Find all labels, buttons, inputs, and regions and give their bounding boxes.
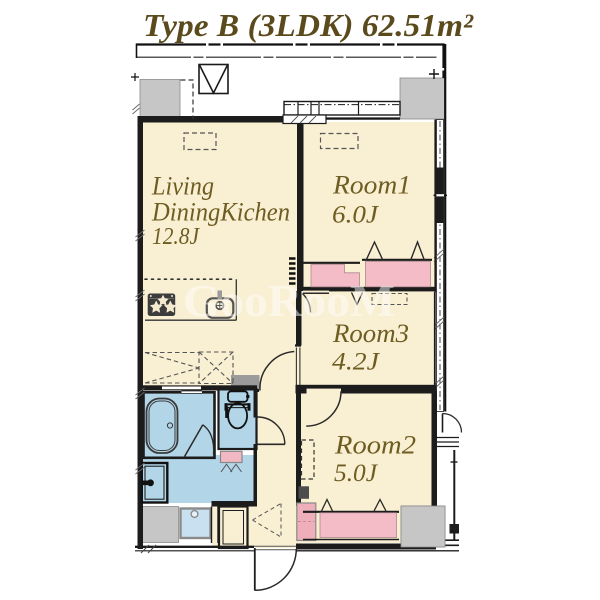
svg-text:Room2: Room2 [334, 431, 416, 460]
svg-text:Living: Living [151, 172, 214, 201]
svg-text:Room1: Room1 [332, 171, 411, 200]
svg-text:GooRooM: GooRooM [183, 276, 395, 326]
svg-text:12.8J: 12.8J [152, 224, 200, 250]
svg-text:4.2J: 4.2J [332, 349, 381, 376]
svg-text:DiningKichen: DiningKichen [151, 198, 290, 227]
svg-text:6.0J: 6.0J [332, 202, 380, 229]
svg-text:5.0J: 5.0J [334, 460, 379, 487]
svg-text:Type B (3LDK) 62.51m²: Type B (3LDK) 62.51m² [143, 7, 474, 43]
